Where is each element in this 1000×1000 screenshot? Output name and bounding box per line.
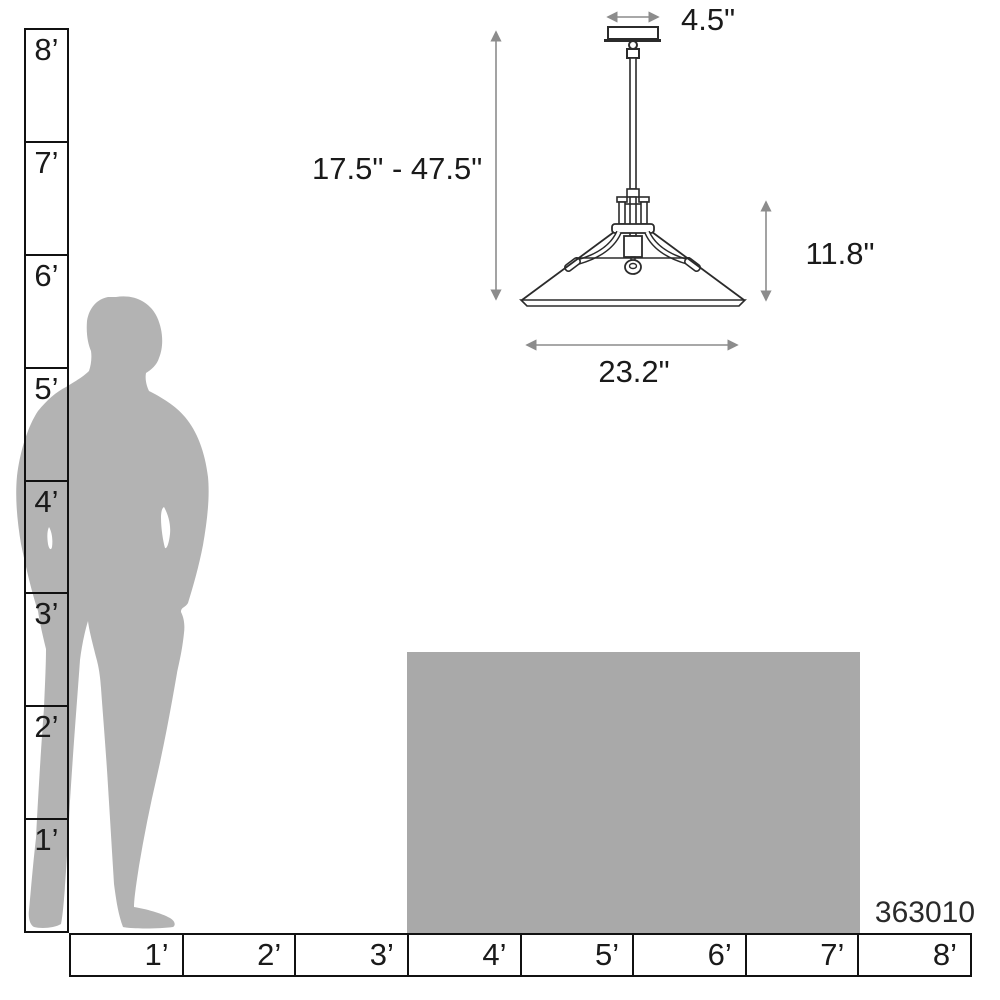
pendant-shade-slope-left [522, 232, 614, 300]
pendant-collar-band [612, 224, 654, 233]
ruler-cell-5ft: 5’ [522, 935, 635, 975]
pendant-fixture-drawing [521, 27, 745, 306]
horizontal-ruler: 1’ 2’ 3’ 4’ 5’ 6’ 7’ 8’ [69, 933, 972, 977]
ruler-label-8ft: 8’ [34, 34, 58, 67]
ruler-cell-8ft: 8’ [859, 935, 970, 975]
ruler-label-4ft: 4’ [34, 486, 58, 519]
pendant-shade-slope-right [652, 232, 744, 300]
canopy-width-label: 4.5" [681, 2, 735, 38]
ruler-box-3ft: 3’ [26, 594, 67, 707]
pendant-yoke-bar-left [619, 202, 625, 224]
ruler-cell-3ft: 3’ [296, 935, 409, 975]
pendant-finial-dot [630, 264, 637, 269]
ruler-label-1ft: 1’ [34, 824, 58, 857]
pendant-shade-rim [521, 300, 745, 306]
ruler-label-2ft: 2’ [34, 711, 58, 744]
ruler-label-3ft: 3’ [34, 598, 58, 631]
vertical-ruler: 8’ 7’ 6’ 5’ 4’ 3’ 2’ 1’ [24, 28, 69, 933]
pendant-rod [630, 58, 636, 189]
ruler-cell-label-7ft: 7’ [820, 937, 844, 973]
ruler-box-5ft: 5’ [26, 369, 67, 482]
ruler-cell-1ft: 1’ [71, 935, 184, 975]
ruler-cell-label-8ft: 8’ [933, 937, 957, 973]
shade-height-label: 11.8" [790, 236, 890, 272]
pendant-socket [624, 236, 642, 257]
ruler-cell-label-2ft: 2’ [257, 937, 281, 973]
ruler-cell-2ft: 2’ [184, 935, 297, 975]
pendant-yoke-bar-right [641, 202, 647, 224]
pendant-clip-right [684, 257, 702, 273]
ruler-box-6ft: 6’ [26, 256, 67, 369]
ruler-cell-4ft: 4’ [409, 935, 522, 975]
ruler-label-5ft: 5’ [34, 373, 58, 406]
pendant-swivel [629, 41, 637, 49]
pendant-canopy [608, 27, 658, 39]
size-guide-diagram: 8’ 7’ 6’ 5’ 4’ 3’ 2’ 1’ 1’ 2’ 3’ 4’ 5’ 6… [0, 0, 1000, 1000]
ruler-cell-label-1ft: 1’ [144, 937, 168, 973]
ruler-box-2ft: 2’ [26, 707, 67, 820]
ruler-cell-label-6ft: 6’ [708, 937, 732, 973]
table-rectangle [407, 652, 860, 933]
ruler-box-4ft: 4’ [26, 482, 67, 595]
height-range-label: 17.5" - 47.5" [312, 151, 472, 187]
diagram-artwork [0, 0, 1000, 1000]
ruler-cell-label-4ft: 4’ [482, 937, 506, 973]
ruler-label-7ft: 7’ [34, 147, 58, 180]
ruler-box-7ft: 7’ [26, 143, 67, 256]
ruler-box-1ft: 1’ [26, 820, 67, 931]
ruler-label-6ft: 6’ [34, 260, 58, 293]
ruler-cell-6ft: 6’ [634, 935, 747, 975]
ruler-cell-7ft: 7’ [747, 935, 860, 975]
shade-width-label: 23.2" [584, 354, 684, 390]
product-code: 363010 [845, 896, 975, 930]
pendant-rod-collar [627, 189, 639, 197]
pendant-coupler [627, 49, 639, 58]
ruler-box-8ft: 8’ [26, 30, 67, 143]
ruler-cell-label-3ft: 3’ [370, 937, 394, 973]
ruler-cell-label-5ft: 5’ [595, 937, 619, 973]
